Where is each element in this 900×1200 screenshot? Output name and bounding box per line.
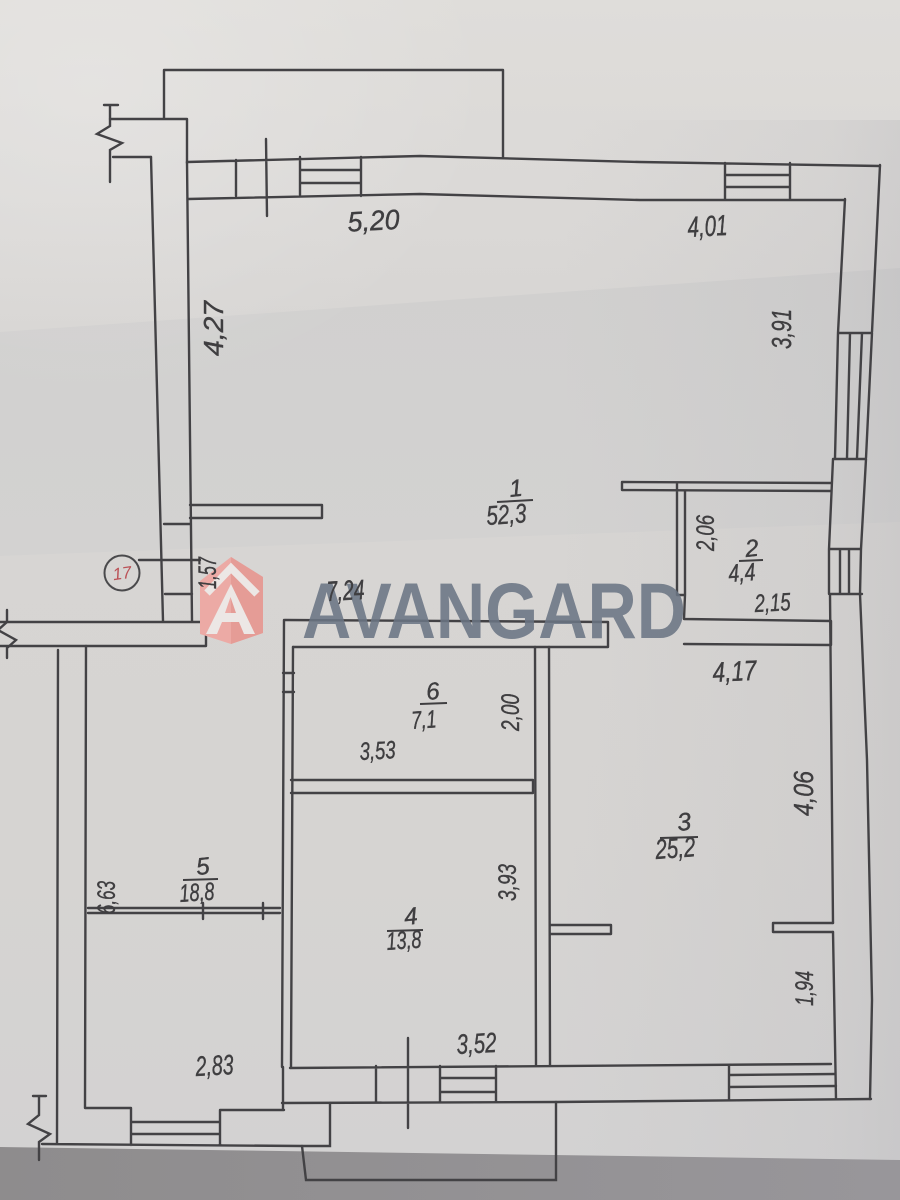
- svg-text:1,57: 1,57: [194, 556, 222, 589]
- svg-text:2,06: 2,06: [692, 515, 720, 552]
- svg-text:52,3: 52,3: [485, 498, 527, 531]
- svg-text:13,8: 13,8: [385, 926, 422, 956]
- svg-text:1,94: 1,94: [791, 971, 819, 1006]
- svg-text:3,91: 3,91: [766, 309, 797, 349]
- svg-text:4,4: 4,4: [727, 558, 756, 588]
- svg-text:18,8: 18,8: [178, 878, 215, 908]
- svg-text:7,1: 7,1: [410, 705, 437, 735]
- svg-text:4,01: 4,01: [687, 210, 729, 244]
- svg-text:25,2: 25,2: [654, 831, 697, 865]
- svg-text:2,15: 2,15: [753, 588, 791, 618]
- svg-text:4,06: 4,06: [788, 771, 819, 816]
- svg-text:6,63: 6,63: [93, 881, 121, 914]
- svg-text:2,83: 2,83: [194, 1049, 235, 1082]
- svg-text:4,27: 4,27: [198, 300, 229, 356]
- svg-text:5,20: 5,20: [347, 204, 401, 238]
- svg-text:7,24: 7,24: [326, 574, 366, 607]
- svg-text:3,52: 3,52: [456, 1027, 498, 1060]
- svg-text:17: 17: [111, 563, 133, 585]
- svg-text:4,17: 4,17: [712, 655, 759, 688]
- svg-text:3,53: 3,53: [359, 736, 396, 766]
- svg-text:2,00: 2,00: [497, 694, 525, 732]
- svg-text:3,93: 3,93: [494, 864, 522, 901]
